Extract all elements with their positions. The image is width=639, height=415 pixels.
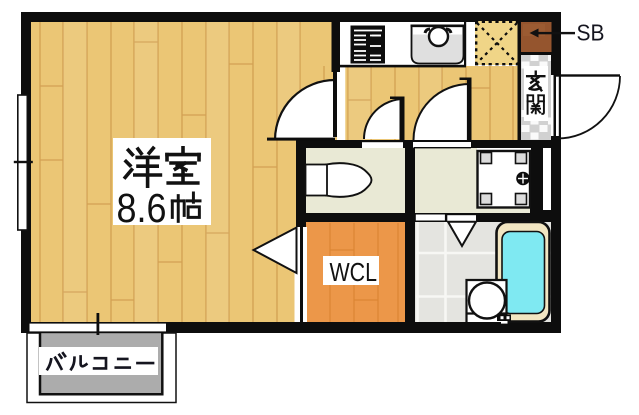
svg-text:8.6: 8.6 — [117, 185, 167, 231]
svg-text:SB: SB — [577, 20, 605, 46]
svg-text:WCL: WCL — [330, 257, 378, 287]
